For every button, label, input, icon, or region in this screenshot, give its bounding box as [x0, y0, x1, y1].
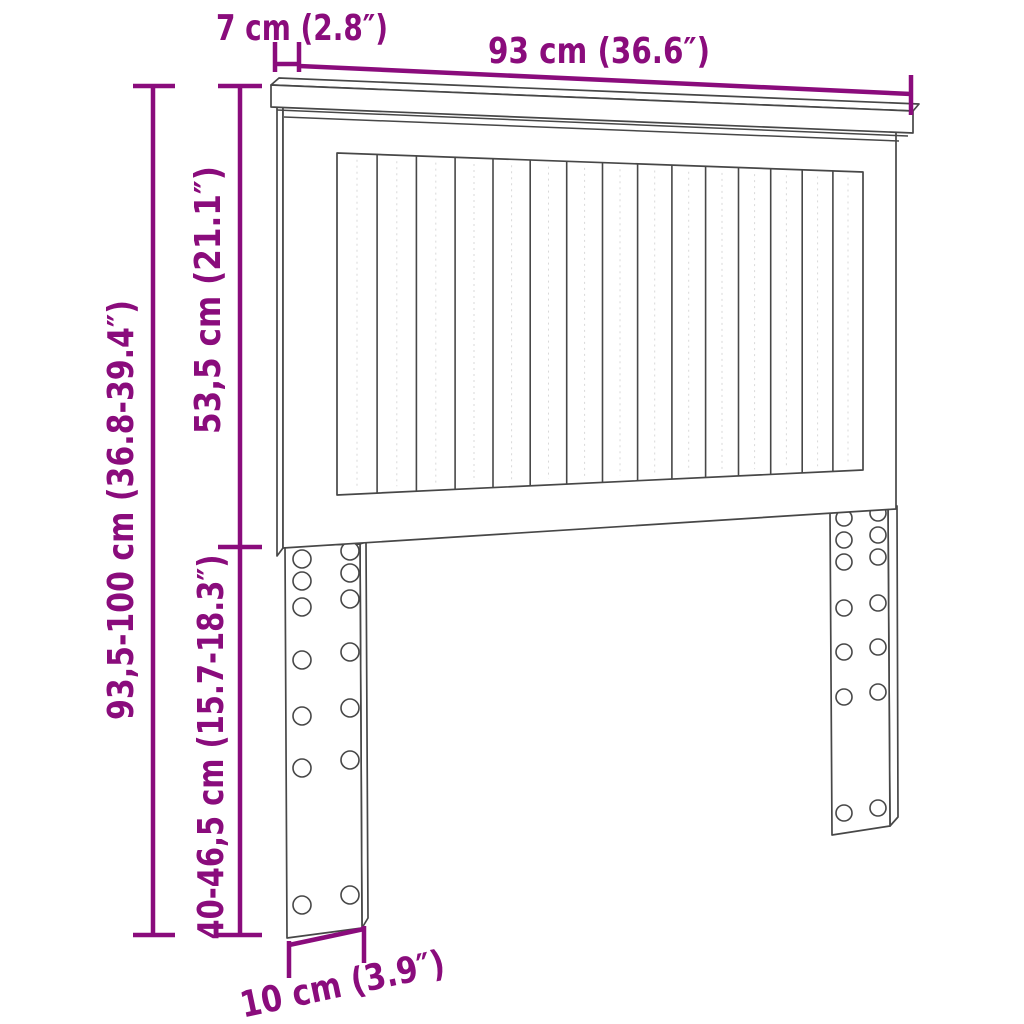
left-leg [285, 542, 368, 938]
label-panel-height: 53,5 cm (21.1″) [188, 166, 229, 434]
label-leg-width: 10 cm (3.9″) [237, 943, 449, 1024]
screw-hole [836, 600, 852, 616]
label-total-height: 93,5-100 cm (36.8-39.4″) [101, 300, 142, 720]
screw-hole [341, 564, 359, 582]
screw-hole [293, 759, 311, 777]
screw-hole [836, 532, 852, 548]
label-shelf-depth: 7 cm (2.8″) [216, 8, 388, 49]
screw-hole [870, 549, 886, 565]
screw-hole [293, 598, 311, 616]
dimension-diagram: 7 cm (2.8″) 93 cm (36.6″) 93,5-100 cm (3… [0, 0, 1024, 1024]
screw-hole [870, 527, 886, 543]
screw-hole [836, 554, 852, 570]
screw-hole [341, 699, 359, 717]
screw-hole [293, 651, 311, 669]
screw-hole [870, 684, 886, 700]
screw-hole [293, 572, 311, 590]
screw-hole [836, 644, 852, 660]
screw-hole [836, 689, 852, 705]
slat-panel [337, 153, 863, 495]
label-width: 93 cm (36.6″) [488, 31, 710, 72]
screw-hole [293, 550, 311, 568]
screw-hole [341, 751, 359, 769]
screw-hole [293, 896, 311, 914]
label-leg-height: 40-46,5 cm (15.7-18.3″) [191, 555, 232, 940]
screw-hole [293, 707, 311, 725]
right-leg [830, 505, 898, 835]
screw-hole [870, 595, 886, 611]
screw-hole [341, 590, 359, 608]
screw-hole [870, 800, 886, 816]
screw-hole [836, 805, 852, 821]
screw-hole [341, 643, 359, 661]
screw-hole [870, 639, 886, 655]
headboard-diagram-svg: 7 cm (2.8″) 93 cm (36.6″) 93,5-100 cm (3… [0, 0, 1024, 1024]
screw-hole [341, 886, 359, 904]
panel-left-edge-face [277, 102, 283, 556]
